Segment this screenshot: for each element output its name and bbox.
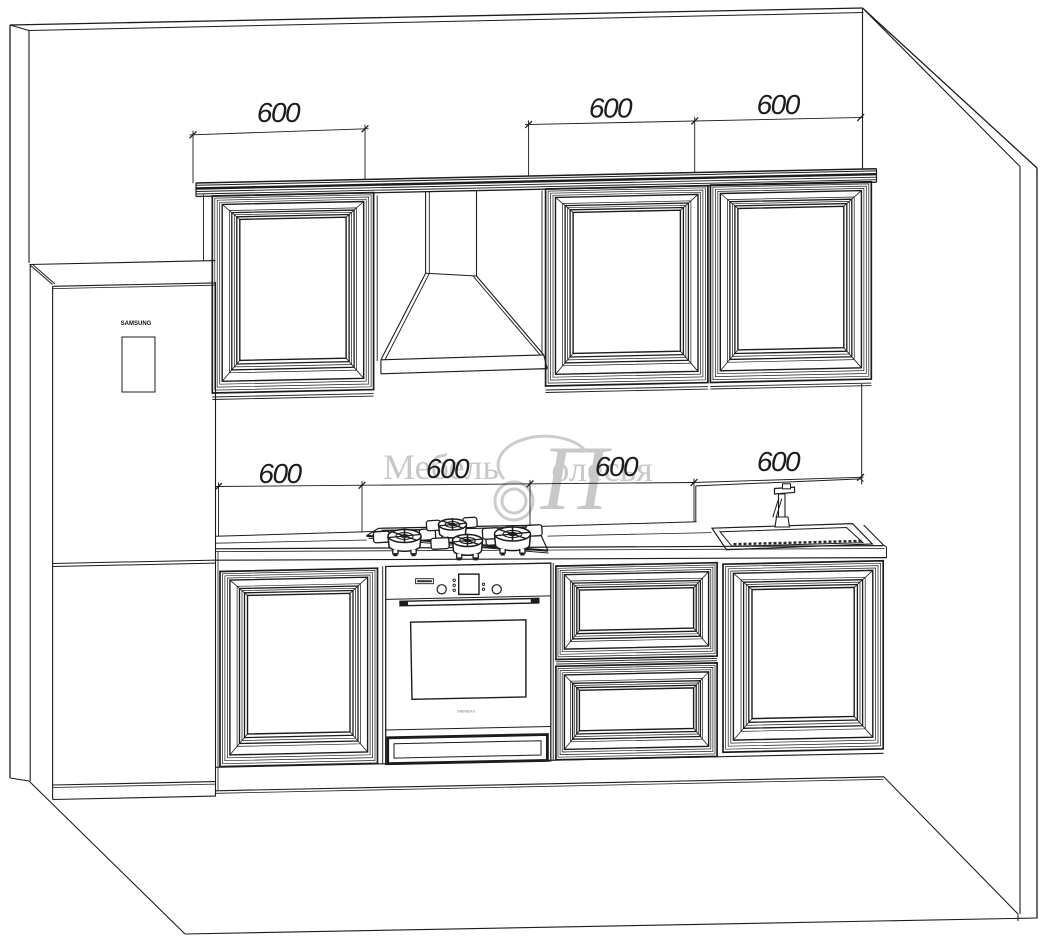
svg-text:600: 600 xyxy=(589,92,633,123)
svg-text:600: 600 xyxy=(258,458,302,489)
svg-text:600: 600 xyxy=(257,97,301,128)
svg-text:SAMSUNG: SAMSUNG xyxy=(121,321,152,327)
svg-text:600: 600 xyxy=(757,446,801,477)
svg-text:600: 600 xyxy=(757,89,801,120)
svg-text:600: 600 xyxy=(426,453,470,484)
svg-text:600: 600 xyxy=(595,451,639,482)
svg-text:SIEMENS: SIEMENS xyxy=(457,709,475,714)
